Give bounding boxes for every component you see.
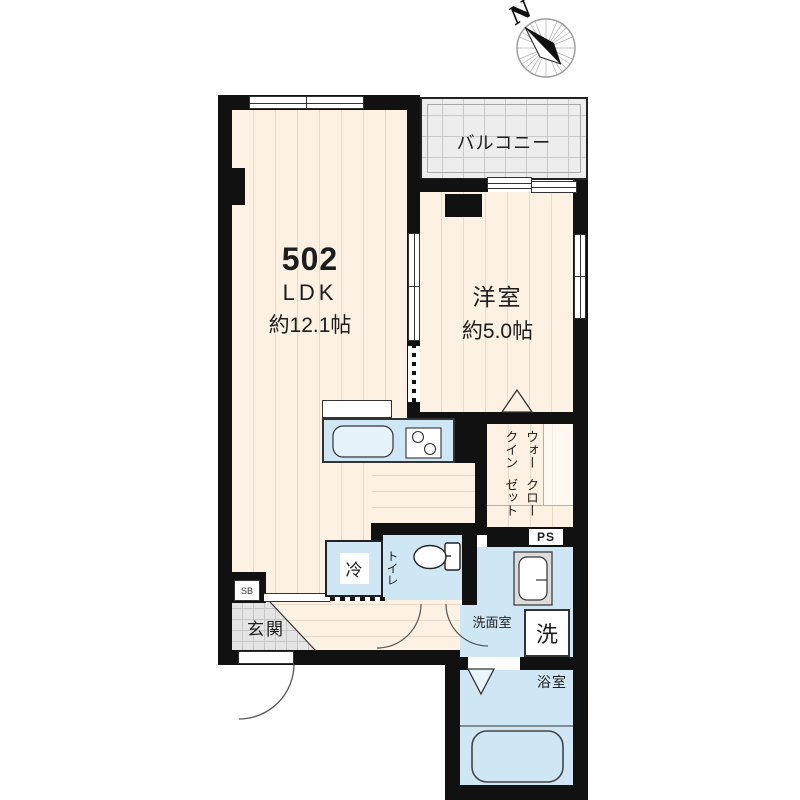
floor-plan: 冷 洗 PS SB N — [0, 0, 800, 800]
western-room-area: 約5.0帖 — [462, 315, 533, 345]
walk-in-closet-line2: クローゼット — [493, 478, 541, 526]
refrigerator-label: 冷 — [340, 553, 369, 584]
ldk-label-block: 502 LDK 約12.1帖 — [230, 238, 390, 342]
walk-in-closet-line1: ウォークイン — [493, 430, 541, 478]
walk-in-closet-label: ウォークイン クローゼット — [493, 430, 541, 526]
unit-number: 502 — [269, 241, 352, 278]
kitchen-counter-end — [322, 400, 392, 418]
room-sliding-door — [408, 286, 420, 341]
shoe-box-label: SB — [241, 586, 253, 596]
window — [249, 96, 307, 109]
pipe-space: PS — [529, 529, 563, 545]
western-room-label-block: 洋室 約5.0帖 — [420, 278, 575, 344]
pipe-space-label: PS — [537, 530, 555, 544]
compass-icon: N — [503, 0, 575, 77]
wall-pillar — [230, 168, 245, 205]
wall — [445, 655, 460, 800]
wall — [462, 535, 477, 605]
counter-edge — [264, 593, 330, 602]
corridor-floor — [372, 463, 475, 523]
open-boundary — [408, 346, 420, 402]
closet-shelf-line-v — [543, 424, 544, 505]
washroom-floor-upper — [477, 547, 573, 605]
balcony-label: バルコニー — [420, 128, 588, 156]
balcony-sliding-door — [487, 177, 532, 189]
layout-type: LDK — [269, 280, 352, 306]
kitchen-counter — [322, 418, 455, 463]
closet-shelf-area — [544, 424, 573, 505]
washing-machine: 洗 — [524, 609, 570, 657]
wall-pillar — [445, 194, 482, 217]
entrance-door-leaf — [238, 651, 294, 664]
refrigerator: 冷 — [325, 540, 383, 597]
wall — [455, 424, 487, 463]
bathroom-label: 浴室 — [530, 673, 574, 691]
ldk-area: 約12.1帖 — [269, 309, 352, 339]
toilet-label: トイレ — [386, 539, 401, 597]
window — [306, 96, 364, 109]
western-room-name: 洋室 — [462, 278, 533, 312]
entrance-label: 玄関 — [238, 615, 294, 639]
balcony-sliding-door — [531, 181, 577, 193]
wall — [420, 179, 488, 192]
wall — [573, 545, 588, 800]
wall — [371, 523, 487, 535]
washing-machine-label: 洗 — [536, 617, 558, 649]
wall — [460, 657, 468, 670]
wall — [520, 657, 573, 670]
entrance-door-swing — [239, 664, 294, 719]
compass-north-label: N — [503, 0, 539, 31]
room-sliding-door — [408, 233, 420, 287]
window — [574, 234, 586, 277]
shoe-box: SB — [234, 580, 260, 601]
washroom-label: 洗面室 — [466, 612, 518, 630]
window — [574, 276, 586, 319]
wall — [445, 785, 588, 800]
